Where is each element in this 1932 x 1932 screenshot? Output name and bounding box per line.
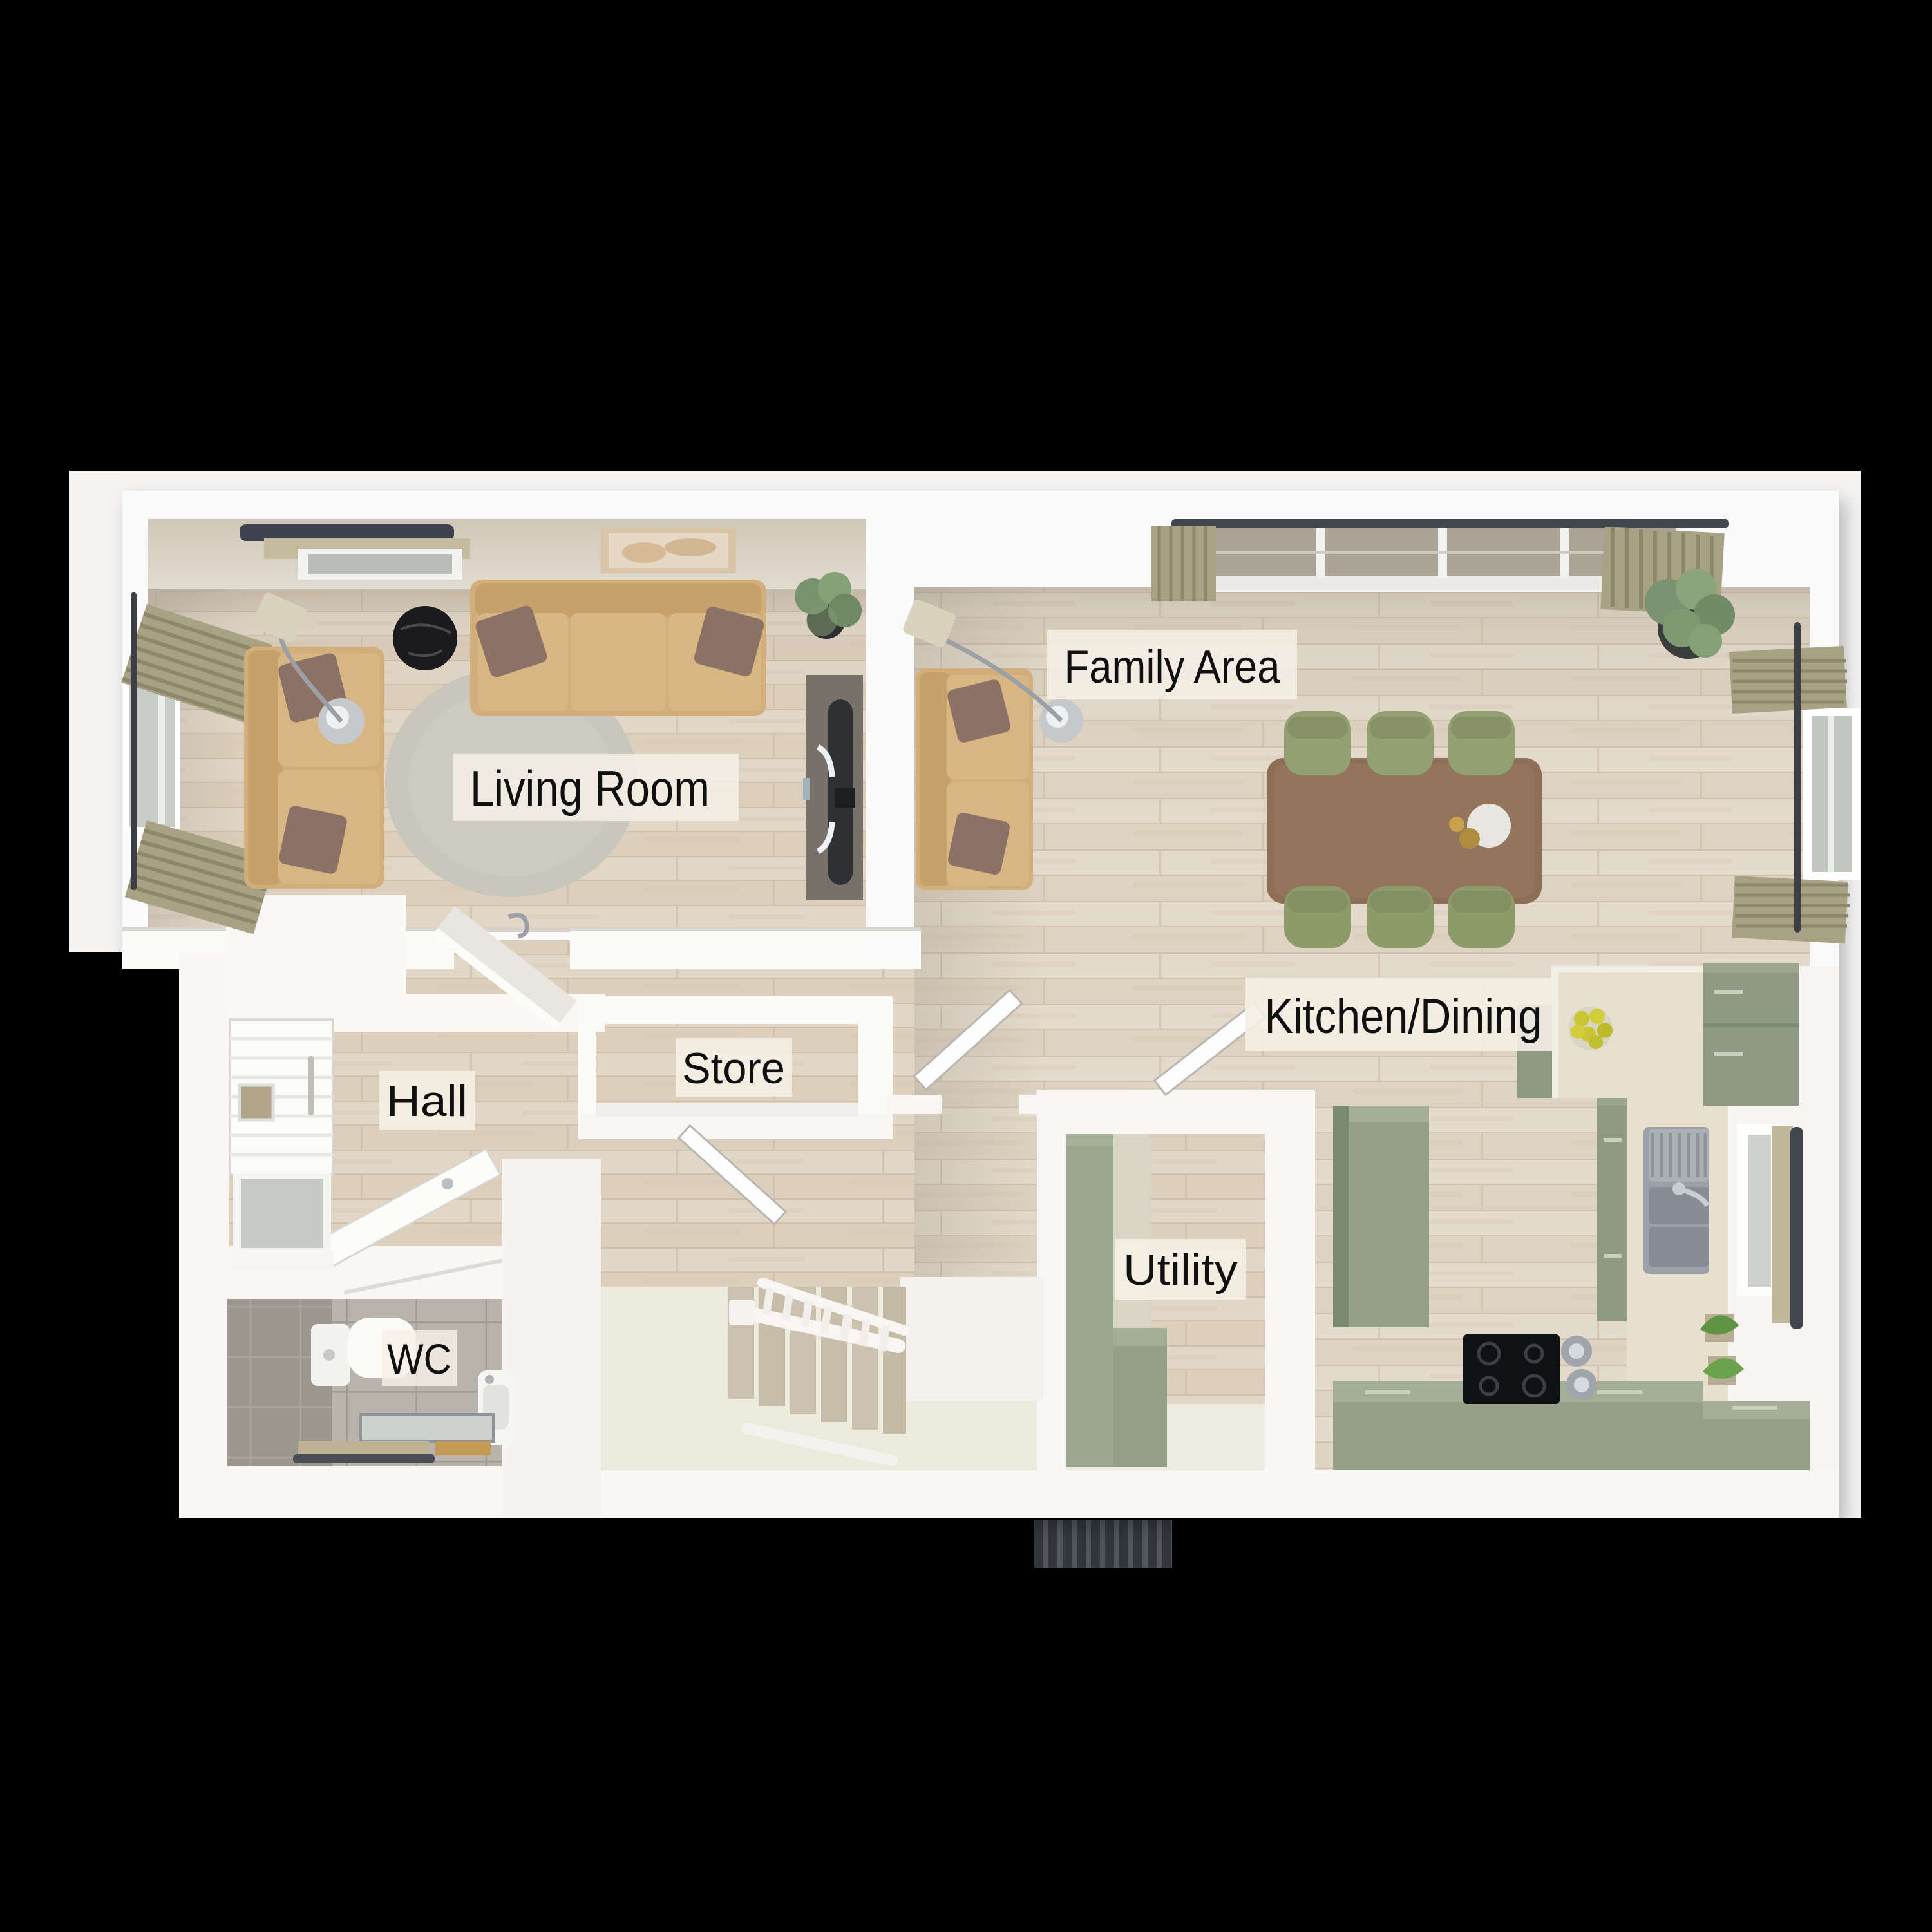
svg-text:Store: Store — [682, 1044, 785, 1093]
svg-text:Kitchen/Dining: Kitchen/Dining — [1265, 989, 1542, 1044]
svg-text:Utility: Utility — [1123, 1245, 1238, 1294]
svg-text:WC: WC — [387, 1335, 451, 1383]
svg-text:Hall: Hall — [386, 1077, 468, 1126]
svg-text:Family Area: Family Area — [1065, 641, 1281, 693]
svg-text:Living Room: Living Room — [470, 760, 710, 817]
